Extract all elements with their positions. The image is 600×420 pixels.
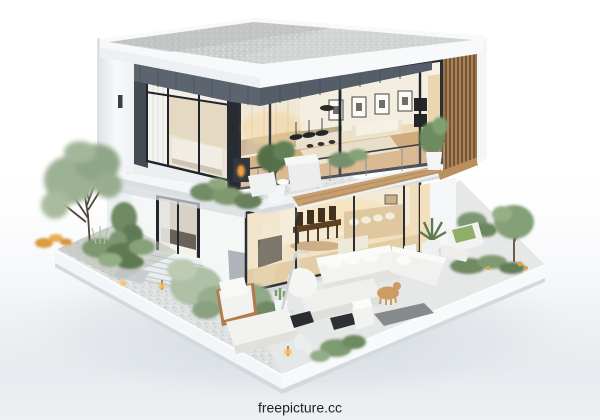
svg-text:freepicture.cc: freepicture.cc bbox=[258, 400, 342, 416]
